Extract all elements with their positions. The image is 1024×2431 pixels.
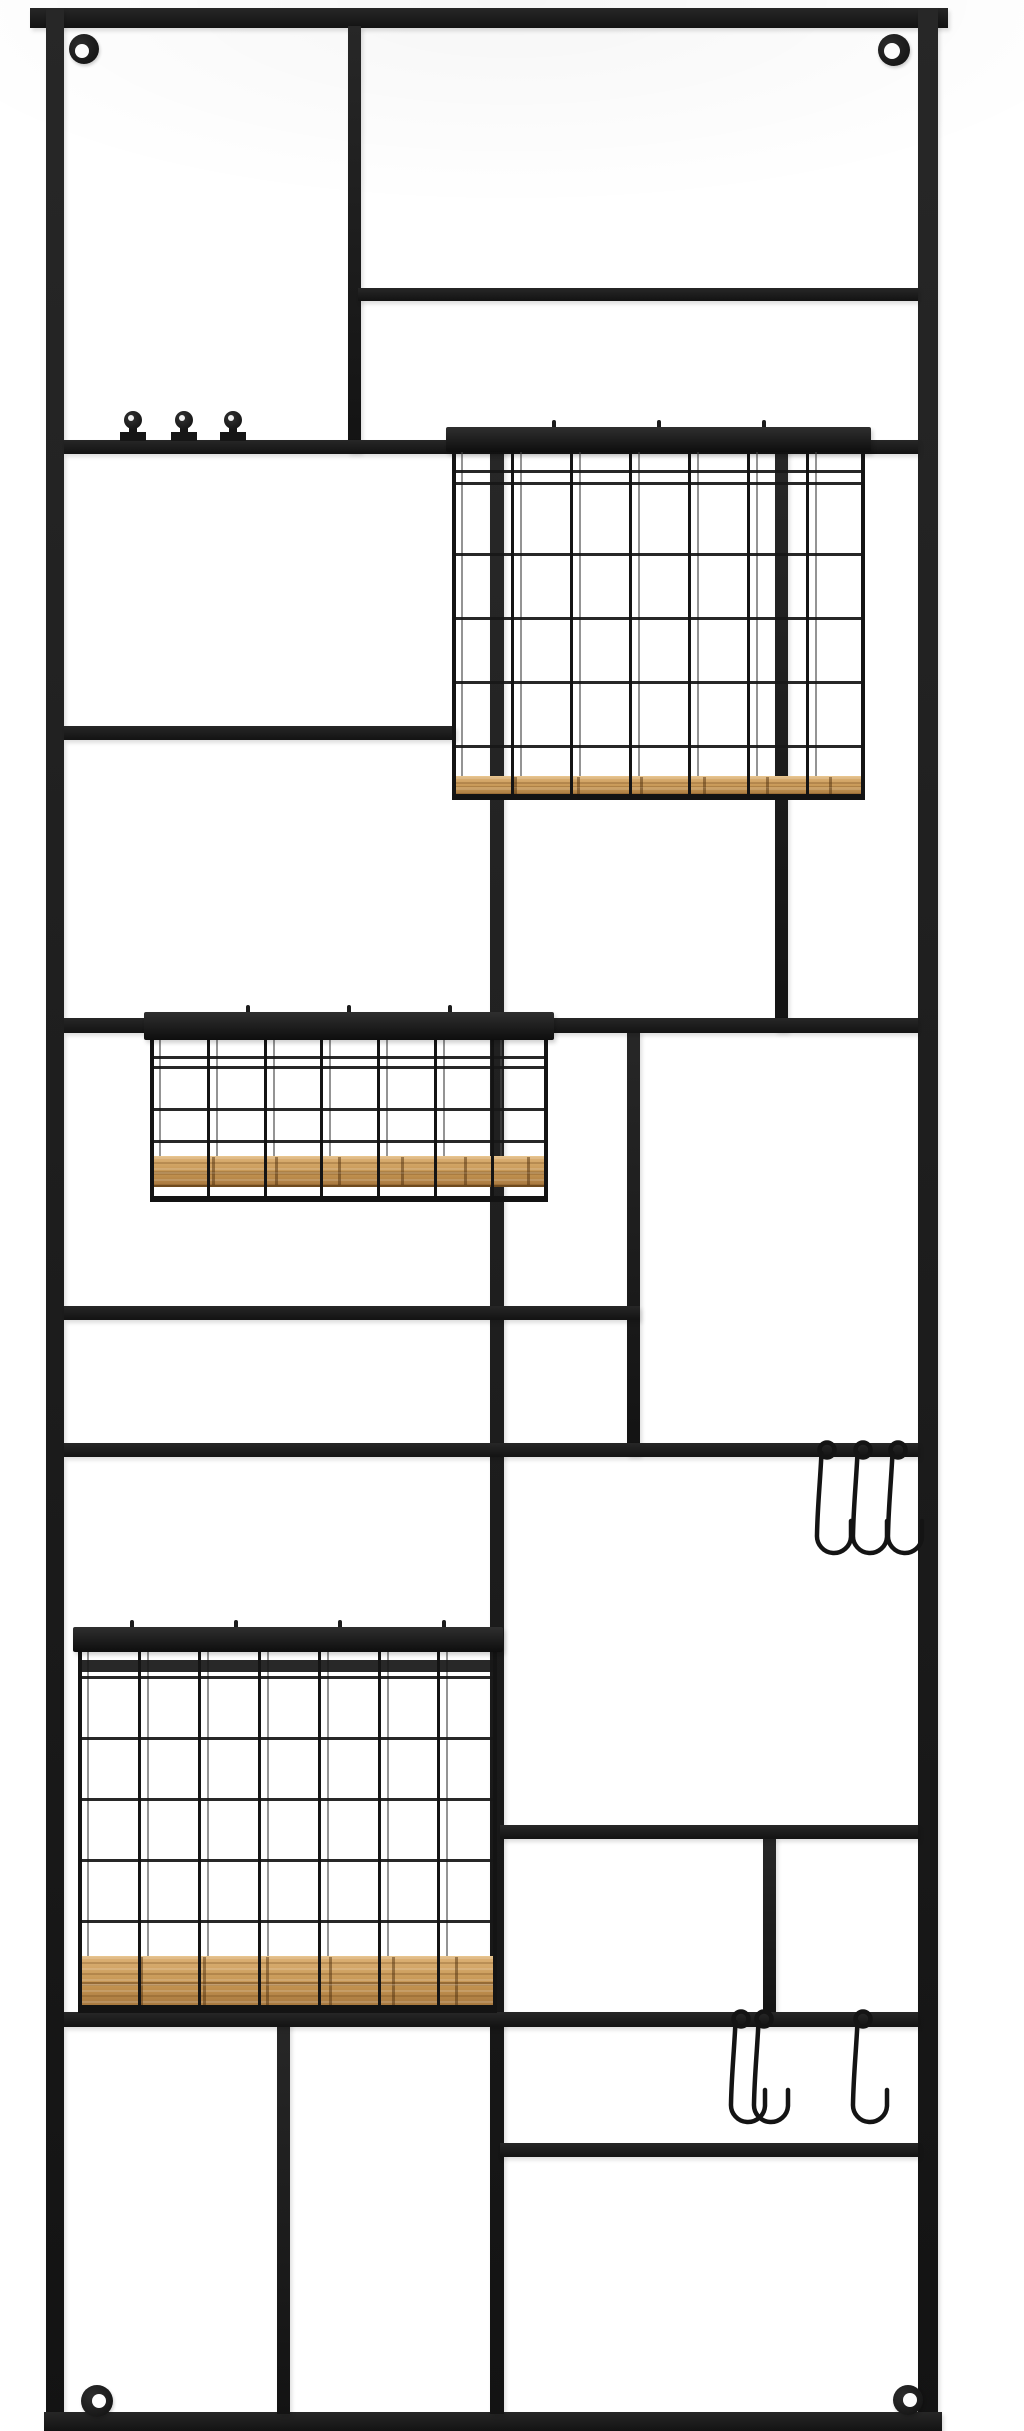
basket-wire-column: [207, 1040, 210, 1202]
basket-wire-column: [318, 1652, 321, 2013]
basket-rail: [73, 1627, 503, 1652]
mounting-tab-top-left: [69, 34, 99, 64]
divider-vertical-4: [627, 1030, 640, 1455]
basket-back-wire: [87, 1652, 89, 1956]
divider-vertical-5: [277, 2020, 290, 2414]
peg-neck-2: [180, 428, 188, 436]
basket-wire-column: [452, 452, 456, 800]
basket-wire-column: [138, 1652, 141, 2013]
shelf-bar-right-low: [500, 1825, 918, 1839]
basket-back-wire: [697, 452, 699, 776]
basket-wire-column: [320, 1040, 323, 1202]
product-photo-wall-rack: [0, 0, 1024, 2431]
basket-back-wire: [446, 1652, 448, 1956]
frame-bottom-bar: [44, 2412, 942, 2431]
basket-back-wire: [579, 452, 581, 776]
basket-wire-column: [491, 1040, 494, 1202]
basket-bottom-rim: [150, 1196, 548, 1202]
peg-neck-3: [229, 428, 237, 436]
peg-glint-1: [128, 415, 134, 421]
peg-glint-3: [228, 415, 234, 421]
basket-back-wire: [147, 1652, 149, 1956]
basket-wire-column: [150, 1040, 154, 1202]
s-hook-middle-3: [876, 1439, 926, 1565]
mounting-tab-bottom-right-hole: [903, 2393, 917, 2407]
basket-wire-column: [747, 452, 750, 800]
basket-wire-column: [437, 1652, 440, 2013]
wood-base: [152, 1156, 546, 1187]
basket-wire-column: [78, 1652, 82, 2013]
basket-bottom-rim: [78, 2005, 497, 2013]
wood-base: [80, 1956, 495, 2007]
basket-wire-column: [377, 1040, 380, 1202]
s-hook-bottom-2: [742, 2008, 792, 2134]
mounting-tab-bottom-left: [81, 2385, 113, 2417]
s-hook-bottom-3: [841, 2008, 891, 2134]
divider-vertical-1: [348, 26, 361, 452]
basket-wire-column: [861, 452, 865, 800]
basket-back-wire: [815, 452, 817, 776]
basket-rail: [446, 427, 871, 452]
basket-wire-column: [544, 1040, 548, 1202]
frame-left-bar: [46, 8, 64, 2431]
basket-wire-column: [378, 1652, 381, 2013]
shelf-bar-left-2: [64, 1306, 640, 1320]
basket-wire-column: [629, 452, 632, 800]
peg-glint-2: [179, 415, 185, 421]
shelf-bar-bottom-right: [500, 2143, 918, 2157]
divider-vertical-6: [763, 1836, 776, 2018]
basket-back-wire: [387, 1652, 389, 1956]
basket-back-wire: [207, 1652, 209, 1956]
basket-back-wire: [520, 452, 522, 776]
basket-rail: [144, 1012, 554, 1040]
wire-basket-top: [452, 427, 865, 800]
basket-back-wire: [461, 452, 463, 776]
mounting-tab-top-right-hole: [884, 43, 900, 59]
basket-back-wire: [638, 452, 640, 776]
peg-neck-1: [129, 428, 137, 436]
hook-bar-middle: [64, 1443, 918, 1457]
basket-wire-column: [264, 1040, 267, 1202]
shelf-bar-left-mid: [64, 726, 456, 740]
mounting-tab-top-right: [878, 34, 910, 66]
basket-wire-column: [511, 452, 514, 800]
frame-right-bar: [918, 8, 938, 2431]
mounting-tab-bottom-left-hole: [92, 2394, 106, 2408]
basket-wire-column: [570, 452, 573, 800]
basket-back-wire: [327, 1652, 329, 1956]
wire-basket-middle: [150, 1012, 548, 1202]
basket-back-wire: [267, 1652, 269, 1956]
basket-wire-column: [806, 452, 809, 800]
mounting-tab-top-left-hole: [75, 44, 89, 58]
basket-wire-column: [258, 1652, 261, 2013]
basket-wire-column: [688, 452, 691, 800]
basket-back-wire: [756, 452, 758, 776]
wire-basket-bottom: [78, 1627, 497, 2013]
basket-wire-column: [198, 1652, 201, 2013]
basket-wire-column: [434, 1040, 437, 1202]
frame-top-bar: [30, 8, 948, 28]
mounting-tab-bottom-right: [893, 2385, 923, 2415]
basket-wire-column: [493, 1652, 497, 2013]
basket-bottom-rim: [452, 794, 865, 800]
shelf-bar-top-right: [358, 288, 918, 301]
